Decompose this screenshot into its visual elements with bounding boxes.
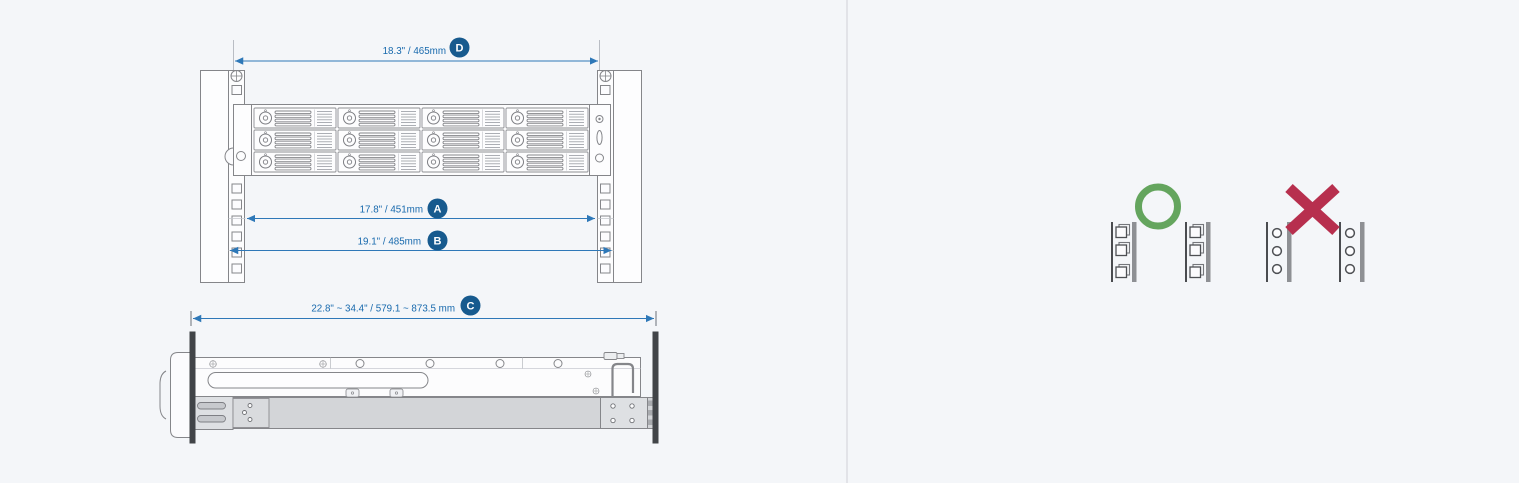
rack-dimensions-panel: 18.3" / 465mm D 17.8" / 451mm A (0, 0, 846, 483)
drive-bay (338, 152, 420, 172)
dimension-c: 22.8" ~ 34.4" / 579.1 ~ 873.5 mm C (191, 296, 656, 327)
right-mounting-ear (590, 105, 611, 176)
round-hole-rail (1339, 222, 1365, 282)
svg-text:D: D (456, 43, 464, 55)
correct-mounting-example (1111, 187, 1211, 282)
slide-rail (191, 397, 658, 430)
side-view: 22.8" ~ 34.4" / 579.1 ~ 873.5 mm C (160, 296, 659, 444)
rack-hole-guide-diagram (848, 0, 1519, 483)
drive-bay (254, 130, 336, 150)
dimension-d-badge: D (450, 38, 470, 58)
rail-front-bracket (191, 397, 233, 430)
dimension-b-badge: B (428, 231, 448, 251)
drive-bay (506, 108, 588, 128)
screw-icon (585, 371, 591, 377)
rack-mount-guide-page: 18.3" / 465mm D 17.8" / 451mm A (0, 0, 1519, 483)
dimension-c-badge: C (461, 296, 481, 316)
rack-hole-type-panel (848, 0, 1519, 483)
square-hole-rail (1185, 222, 1211, 282)
rack-dimension-diagram: 18.3" / 465mm D 17.8" / 451mm A (0, 0, 846, 483)
drive-bay (422, 108, 504, 128)
svg-text:A: A (434, 204, 442, 216)
dimension-d: 18.3" / 465mm D (234, 38, 600, 71)
chassis-side-body (191, 353, 641, 398)
svg-text:B: B (434, 236, 442, 248)
dimension-d-label: 18.3" / 465mm (383, 46, 446, 57)
nas-chassis-front (225, 105, 611, 176)
inner-rail-slot (208, 373, 428, 389)
x-mark-icon (1289, 188, 1336, 231)
dimension-a-label: 17.8" / 451mm (360, 205, 423, 216)
rack-screw-icon (231, 71, 242, 82)
dimension-b-label: 19.1" / 485mm (358, 237, 421, 248)
drive-bay (422, 152, 504, 172)
incorrect-mounting-example (1266, 188, 1365, 282)
circle-ok-icon (1139, 187, 1178, 226)
drive-bay (506, 152, 588, 172)
drive-bay (338, 130, 420, 150)
dimension-b: 19.1" / 485mm B (229, 231, 614, 251)
svg-text:C: C (467, 301, 475, 313)
front-bezel-side (160, 353, 191, 438)
round-hole-rail (1266, 222, 1292, 282)
rack-screw-icon (600, 71, 611, 82)
drive-bay (422, 130, 504, 150)
screw-icon (593, 388, 599, 394)
dimension-a: 17.8" / 451mm A (229, 199, 614, 219)
rail-rear-bracket (601, 398, 658, 429)
rail-middle-plate (233, 399, 269, 428)
left-rack-post-side (190, 332, 196, 444)
drive-bay (254, 108, 336, 128)
front-view: 18.3" / 465mm D 17.8" / 451mm A (201, 38, 642, 283)
thumbscrew-hole-icon (237, 152, 246, 161)
drive-bay (338, 108, 420, 128)
right-rack-post-side (653, 332, 659, 444)
square-hole-rail (1111, 222, 1137, 282)
screw-icon (210, 361, 217, 368)
drive-bay (254, 152, 336, 172)
drive-bay (506, 130, 588, 150)
dimension-a-badge: A (428, 199, 448, 219)
screw-icon (320, 361, 327, 368)
dimension-c-label: 22.8" ~ 34.4" / 579.1 ~ 873.5 mm (311, 304, 455, 315)
